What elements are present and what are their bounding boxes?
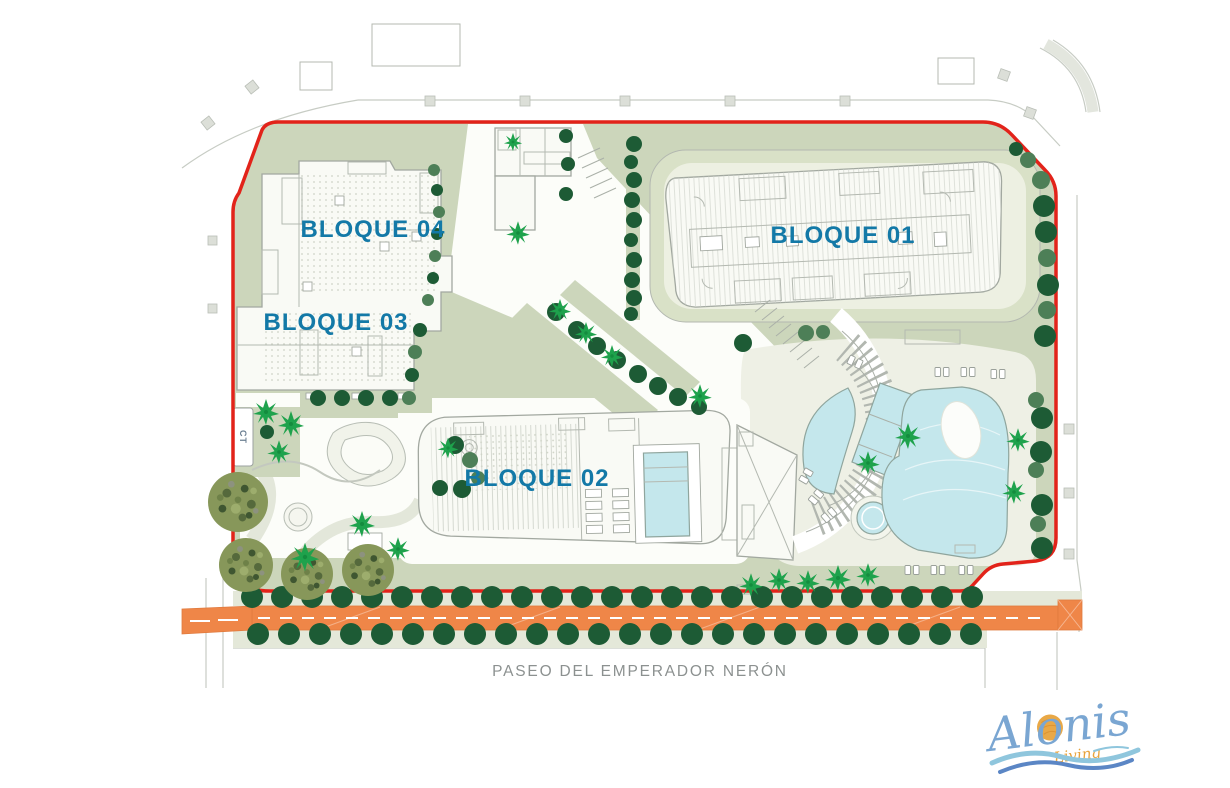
street-tree	[721, 586, 743, 608]
street-tree	[774, 623, 796, 645]
tree	[816, 325, 830, 339]
tree	[649, 377, 667, 395]
street-tree	[931, 586, 953, 608]
rooftop-pool	[643, 452, 689, 537]
label-bloque-01: BLOQUE 01	[770, 222, 915, 249]
street-tree	[960, 623, 982, 645]
tree	[334, 390, 350, 406]
street-tree	[929, 623, 951, 645]
tree	[422, 294, 434, 306]
tree	[1034, 325, 1056, 347]
bush	[342, 544, 394, 596]
bush	[208, 472, 268, 532]
site-plan: CT BLOQUE 04 BLOQUE 03 BLOQUE 01 BLOQUE …	[0, 0, 1230, 788]
street-tree	[661, 586, 683, 608]
tree	[626, 290, 642, 306]
tree	[624, 307, 638, 321]
tree	[626, 172, 642, 188]
street-tree	[681, 623, 703, 645]
street-tree	[340, 623, 362, 645]
tree	[1038, 249, 1056, 267]
tree	[1032, 171, 1050, 189]
street-tree	[247, 623, 269, 645]
tree	[629, 365, 647, 383]
street-tree	[631, 586, 653, 608]
tree	[1030, 516, 1046, 532]
street-tree	[541, 586, 563, 608]
street-name-label: PASEO DEL EMPERADOR NERÓN	[492, 663, 788, 680]
tree	[559, 129, 573, 143]
tree	[624, 272, 640, 288]
tree	[382, 390, 398, 406]
tree	[798, 325, 814, 341]
tree	[431, 184, 443, 196]
crosswalk-top-right	[938, 58, 974, 84]
tree	[1031, 407, 1053, 429]
street-tree	[712, 623, 734, 645]
street-tree	[464, 623, 486, 645]
tree	[669, 388, 687, 406]
street-tree	[331, 586, 353, 608]
street-tree	[391, 586, 413, 608]
tree	[1035, 221, 1057, 243]
parking-structure-top	[372, 24, 460, 66]
tree	[1030, 441, 1052, 463]
tree	[428, 164, 440, 176]
tree	[310, 390, 326, 406]
street-tree	[421, 586, 443, 608]
street-tree	[481, 586, 503, 608]
tree	[405, 368, 419, 382]
label-bloque-03: BLOQUE 03	[263, 309, 408, 336]
tree	[358, 390, 374, 406]
street-tree	[557, 623, 579, 645]
tree	[1028, 392, 1044, 408]
street-tree	[898, 623, 920, 645]
street-tree	[619, 623, 641, 645]
street-tree	[433, 623, 455, 645]
tree	[1038, 301, 1056, 319]
logo: Alonis Living	[980, 691, 1138, 772]
street-tree	[781, 586, 803, 608]
tree	[427, 272, 439, 284]
tree	[408, 345, 422, 359]
street-tree	[867, 623, 889, 645]
tree	[1028, 462, 1044, 478]
street-tree	[278, 623, 300, 645]
street-tree	[805, 623, 827, 645]
street-tree	[901, 586, 923, 608]
tree	[624, 233, 638, 247]
tree	[1037, 274, 1059, 296]
crosswalk-top-left	[300, 62, 332, 90]
street-tree	[371, 623, 393, 645]
tree	[402, 391, 416, 405]
bush	[219, 538, 273, 592]
street-tree	[743, 623, 765, 645]
street-tree	[495, 623, 517, 645]
street-tree	[571, 586, 593, 608]
street-tree	[511, 586, 533, 608]
street-tree	[601, 586, 623, 608]
tree	[624, 155, 638, 169]
tree	[1031, 494, 1053, 516]
street-tree	[402, 623, 424, 645]
tree	[1009, 142, 1023, 156]
street-tree	[811, 586, 833, 608]
tree	[413, 323, 427, 337]
street-tree	[871, 586, 893, 608]
tree	[561, 157, 575, 171]
street-tree	[961, 586, 983, 608]
tree	[429, 250, 441, 262]
street-tree	[841, 586, 863, 608]
tree	[626, 212, 642, 228]
tree	[1031, 537, 1053, 559]
street-tree	[451, 586, 473, 608]
tree	[260, 425, 274, 439]
site-plan-svg: CT BLOQUE 04 BLOQUE 03 BLOQUE 01 BLOQUE …	[0, 0, 1230, 788]
street-tree	[309, 623, 331, 645]
tree	[734, 334, 752, 352]
street-tree	[836, 623, 858, 645]
ct-label: CT	[238, 430, 248, 444]
tree	[624, 192, 640, 208]
label-bloque-02: BLOQUE 02	[464, 465, 609, 492]
tree	[1020, 152, 1036, 168]
tree	[559, 187, 573, 201]
tree	[432, 480, 448, 496]
tree	[626, 136, 642, 152]
label-bloque-04: BLOQUE 04	[300, 216, 445, 243]
tree	[1033, 195, 1055, 217]
tree	[626, 252, 642, 268]
street-tree	[588, 623, 610, 645]
street-tree	[691, 586, 713, 608]
street-tree	[650, 623, 672, 645]
street-tree	[526, 623, 548, 645]
